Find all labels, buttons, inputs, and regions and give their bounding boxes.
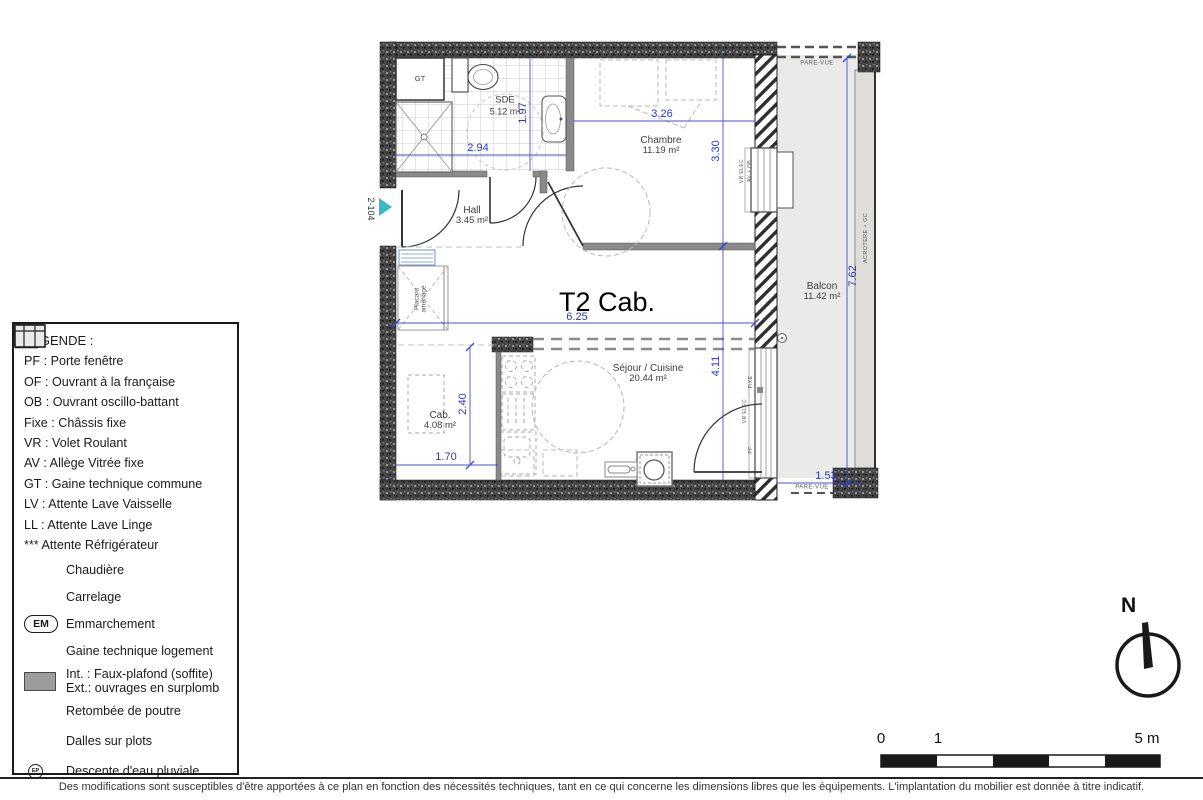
legend-label: Gaine technique logement	[66, 644, 213, 658]
legend-label: Chaudière	[66, 563, 124, 577]
toilet-tank	[452, 58, 468, 92]
room-name: SDE	[490, 96, 521, 107]
room-label-balcon: Balcon 11.42 m²	[804, 281, 841, 303]
sejour-window-label-fixe: FIXE	[749, 376, 755, 389]
legend-label: Int. : Faux-plafond (soffite)	[66, 667, 219, 681]
beam-and-boundaries	[396, 247, 755, 480]
toilet-bowl	[468, 65, 498, 90]
floor-plan-page: T2 Cab. 2-104 GT SDE 5.12 m² Chambre 11.…	[0, 0, 1203, 800]
room-label-hall: Hall 3.45 m²	[456, 205, 488, 227]
gt-label: GT	[415, 75, 425, 83]
chambre-furniture	[562, 60, 716, 256]
sejour-window-door	[749, 348, 777, 478]
legend-item-duct: Gaine technique logement	[24, 639, 231, 663]
room-label-cab: Cab. 4.08 m²	[424, 410, 456, 432]
dim-sde-height: 1.97	[517, 102, 529, 123]
dim-cab-width: 1.70	[435, 451, 456, 463]
scalebar-tick-5: 5 m	[1134, 730, 1159, 747]
legend-item-tiles: Carrelage	[24, 585, 231, 609]
legend-label: Carrelage	[66, 590, 121, 604]
chambre-window-label-vr: VR ELEC	[740, 159, 746, 183]
scalebar-tick-1: 1	[934, 730, 942, 747]
legend-abbr-ob: OB : Ouvrant oscillo-battant	[24, 392, 231, 412]
legend-abbr-lv: LV : Attente Lave Vaisselle	[24, 494, 231, 514]
dim-balcon-height: 7.62	[847, 265, 859, 286]
legend-abbr-vr: VR : Volet Roulant	[24, 433, 231, 453]
room-area: 4.08 m²	[424, 421, 456, 432]
legend-item-boiler: Chaudière	[24, 558, 231, 582]
legend-label: Dalles sur plots	[66, 734, 152, 748]
dim-chambre-height: 3.30	[710, 140, 722, 161]
footer-divider	[0, 777, 1203, 779]
room-label-chambre: Chambre 11.19 m²	[640, 135, 681, 157]
legend-label2: Ext.: ouvrages en surplomb	[66, 681, 219, 695]
north-label: N	[1121, 594, 1136, 618]
room-label-sejour: Séjour / Cuisine 20.44 m²	[613, 363, 684, 385]
legend-item-slabs: Dalles sur plots	[24, 726, 231, 756]
unit-number: 2-104	[366, 197, 376, 220]
sejour-window-label-pf: PF	[749, 446, 755, 453]
pare-vue-bottom-label: PARE-VUE	[795, 485, 828, 492]
room-area: 5.12 m²	[490, 106, 521, 116]
ep-badge-text: EP	[32, 768, 39, 774]
legend-abbr-av: AV : Allège Vitrée fixe	[24, 453, 231, 473]
em-icon: EM	[24, 615, 58, 633]
room-area: 11.19 m²	[640, 146, 681, 157]
dim-balcon-width: 1.53	[815, 470, 836, 482]
placard-label: Placard aménagé	[414, 285, 429, 312]
acrotere-label: ACROTÈRE + GC	[863, 213, 869, 263]
room-area: 20.44 m²	[613, 374, 684, 385]
legend-abbr-gt: GT : Gaine technique commune	[24, 474, 231, 494]
legend-item-soffit: Int. : Faux-plafond (soffite) Ext.: ouvr…	[24, 666, 231, 696]
slabs-icon	[14, 324, 46, 348]
legend-abbr-fixe: Fixe : Châssis fixe	[24, 413, 231, 433]
dim-total-width: 6.25	[566, 311, 587, 323]
balcony	[777, 47, 875, 493]
dim-cab-height: 2.40	[457, 393, 469, 414]
footer-disclaimer: Des modifications sont susceptibles d'êt…	[0, 781, 1203, 793]
sejour-window-label-vr: VR ELEC	[743, 399, 749, 423]
scale-bar	[881, 755, 1160, 767]
legend-box: LEGENDE : PF : Porte fenêtre OF : Ouvran…	[12, 322, 239, 775]
legend-item-beam: Retombée de poutre	[24, 699, 231, 723]
room-area: 11.42 m²	[804, 292, 841, 303]
room-label-sde: SDE 5.12 m²	[490, 96, 521, 117]
dining-table	[532, 361, 624, 453]
legend-item-em: EM Emmarchement	[24, 612, 231, 636]
legend-abbr-fridge: *** Attente Réfrigérateur	[24, 535, 231, 555]
dim-sde-width: 2.94	[467, 142, 488, 154]
soffit-icon	[24, 672, 56, 691]
legend-label: Retombée de poutre	[66, 704, 181, 718]
room-area: 3.45 m²	[456, 216, 488, 227]
north-compass-icon	[1117, 622, 1179, 696]
legend-abbr-ll: LL : Attente Lave Linge	[24, 515, 231, 535]
dim-chambre-width: 3.26	[651, 108, 672, 120]
pare-vue-top-label: PARE-VUE	[800, 61, 833, 68]
scalebar-tick-0: 0	[877, 730, 885, 747]
em-badge-text: EM	[33, 618, 49, 630]
entrance-marker-icon	[379, 198, 392, 216]
dim-sejour-height: 4.11	[710, 356, 722, 377]
legend-label: Emmarchement	[66, 617, 155, 631]
legend-title: LEGENDE :	[24, 331, 231, 351]
chambre-window-label-av: AV + OB	[748, 160, 754, 182]
legend-abbr-pf: PF : Porte fenêtre	[24, 351, 231, 371]
legend-abbr-of: OF : Ouvrant à la française	[24, 372, 231, 392]
legend-item-ep: EP Descente d'eau pluviale	[24, 759, 231, 783]
